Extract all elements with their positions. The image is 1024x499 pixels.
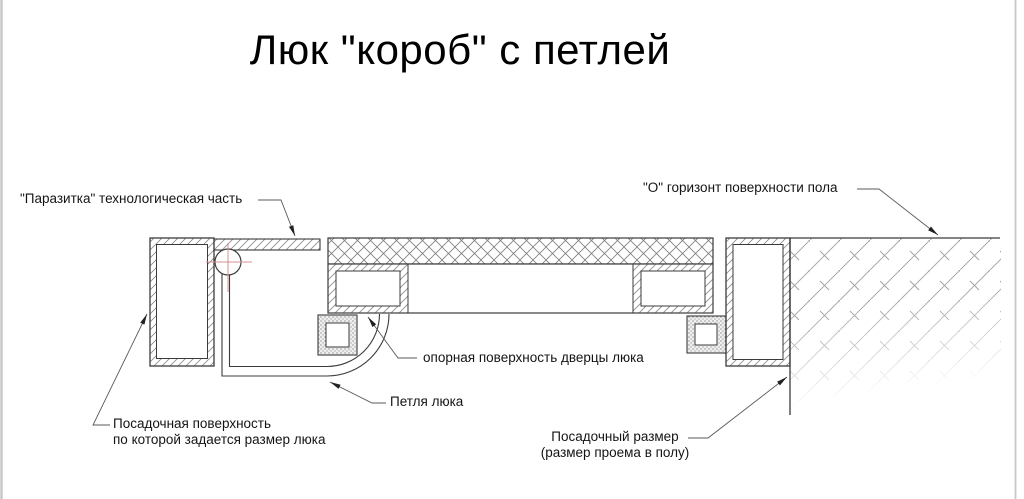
leader-parasitic	[258, 200, 295, 236]
label-seating-size: Посадочный размер (размер проема в полу)	[527, 429, 703, 461]
door-floor-filling	[328, 238, 713, 264]
left-support-pad	[318, 315, 357, 355]
label-door-support-surface: опорная поверхность дверцы люка	[423, 350, 644, 365]
leader-horizon	[857, 189, 938, 235]
label-seating-size-line1: Посадочный размер	[527, 429, 703, 445]
label-seating-surface: Посадочная поверхность по которой задает…	[113, 416, 326, 447]
label-seating-surface-line2: по которой задается размер люка	[113, 432, 326, 448]
diagram-title: Люк "короб" с петлей	[0, 26, 920, 74]
right-support-pad	[687, 316, 726, 353]
left-frame-profile	[150, 238, 214, 366]
label-seating-surface-line1: Посадочная поверхность	[113, 416, 326, 432]
leader-hinge	[330, 382, 386, 403]
diagram-canvas: Люк "короб" с петлей "Паразитка" техноло…	[0, 0, 1024, 499]
leader-seating-surface	[93, 314, 147, 425]
door-right-tube	[633, 264, 713, 313]
door-panel	[328, 238, 713, 313]
door-left-tube	[328, 264, 408, 313]
label-parasitic-part: "Паразитка" технологическая часть	[20, 191, 242, 206]
floor-masonry	[790, 238, 1001, 416]
label-hinge: Петля люка	[390, 394, 463, 409]
label-seating-size-line2: (размер проема в полу)	[527, 445, 703, 461]
right-frame-profile	[726, 238, 790, 366]
parasitic-strip	[214, 239, 320, 250]
label-floor-horizon: "О" горизонт поверхности пола	[643, 180, 838, 195]
leader-support-surface	[368, 317, 417, 358]
